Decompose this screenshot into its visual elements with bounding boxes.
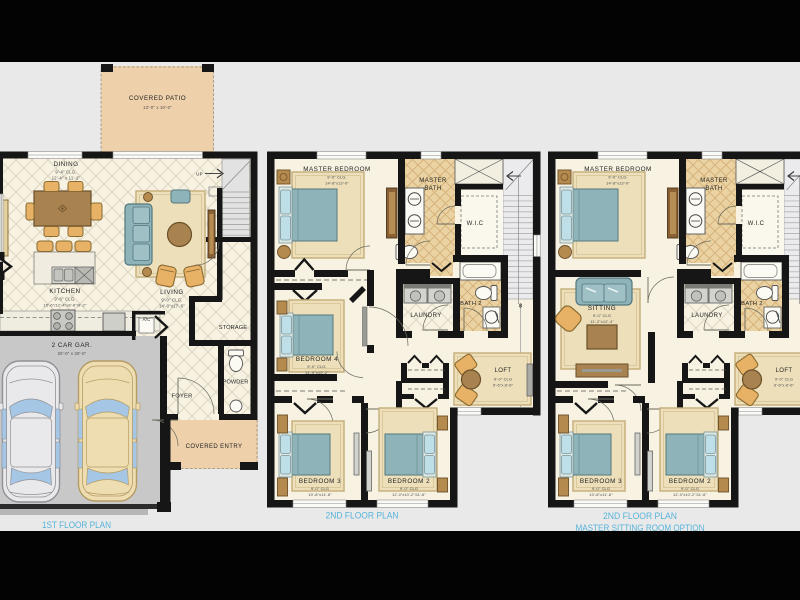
svg-text:W.I.C: W.I.C <box>748 221 765 227</box>
svg-text:15'-6"/12'-4"x8'-6"/9'-2": 15'-6"/12'-4"x8'-6"/9'-2" <box>43 303 87 308</box>
svg-text:9'-0" CLG: 9'-0" CLG <box>592 486 610 491</box>
svg-text:10'-8"x11'-6": 10'-8"x11'-6" <box>589 492 613 497</box>
svg-text:9'-0" CLG.: 9'-0" CLG. <box>608 175 627 180</box>
svg-text:9'-0" CLG: 9'-0" CLG <box>593 313 611 318</box>
svg-text:9'-0" CLG: 9'-0" CLG <box>681 486 699 491</box>
svg-text:COVERED PATIO: COVERED PATIO <box>129 95 186 102</box>
svg-text:9'-0" CLG: 9'-0" CLG <box>400 486 418 491</box>
svg-text:8: 8 <box>519 304 522 310</box>
svg-text:12'-0"x10'-2"/11'-6": 12'-0"x10'-2"/11'-6" <box>673 493 707 497</box>
svg-text:9'-0" CLG: 9'-0" CLG <box>311 486 329 491</box>
svg-text:14'-0"x17'-6": 14'-0"x17'-6" <box>159 304 185 309</box>
svg-text:FOYER: FOYER <box>172 394 193 400</box>
svg-text:BATH 2: BATH 2 <box>741 301 763 307</box>
svg-text:MASTER BEDROOM: MASTER BEDROOM <box>303 166 371 173</box>
svg-text:UP: UP <box>196 172 203 177</box>
svg-text:11'-2"x12'-4": 11'-2"x12'-4" <box>590 319 614 324</box>
svg-text:BEDROOM 2: BEDROOM 2 <box>669 478 711 485</box>
svg-text:1ST FLOOR PLAN: 1ST FLOOR PLAN <box>42 520 111 530</box>
svg-text:9'-6" CLG.: 9'-6" CLG. <box>54 297 75 302</box>
svg-text:LOFT: LOFT <box>776 368 793 374</box>
svg-text:9'-0" CLG.: 9'-0" CLG. <box>327 175 346 180</box>
svg-text:BEDROOM 2: BEDROOM 2 <box>388 478 430 485</box>
svg-text:A/C: A/C <box>143 317 151 322</box>
svg-text:13'-0" x 10'-0": 13'-0" x 10'-0" <box>143 105 172 110</box>
svg-text:MASTER: MASTER <box>419 178 447 184</box>
svg-text:LIVING: LIVING <box>160 289 184 296</box>
svg-text:BATH: BATH <box>705 186 722 192</box>
svg-text:12'-4" x 11'-2": 12'-4" x 11'-2" <box>52 176 81 181</box>
svg-text:W.I.C: W.I.C <box>467 221 484 227</box>
svg-text:9'-0" CLG.: 9'-0" CLG. <box>161 298 182 303</box>
svg-text:POWDER: POWDER <box>223 380 249 386</box>
svg-text:9'-6"x 8'-6": 9'-6"x 8'-6" <box>774 383 795 388</box>
svg-text:9'-0" CLG: 9'-0" CLG <box>775 377 793 382</box>
svg-text:BATH: BATH <box>424 186 441 192</box>
svg-text:9'-0" CLG.: 9'-0" CLG. <box>307 364 326 369</box>
svg-text:10'-8"x11'-6": 10'-8"x11'-6" <box>308 492 332 497</box>
svg-text:STORAGE: STORAGE <box>219 325 248 331</box>
svg-text:BEDROOM 4: BEDROOM 4 <box>296 356 338 363</box>
svg-text:BEDROOM 3: BEDROOM 3 <box>299 478 341 485</box>
svg-text:KITCHEN: KITCHEN <box>49 288 80 295</box>
svg-text:2ND FLOOR PLAN: 2ND FLOOR PLAN <box>603 511 677 521</box>
svg-text:SITTING: SITTING <box>588 305 616 312</box>
svg-text:2ND FLOOR PLAN: 2ND FLOOR PLAN <box>326 511 399 521</box>
svg-text:9'-4" CLG.: 9'-4" CLG. <box>55 170 76 175</box>
svg-text:14'-8"x13'-0": 14'-8"x13'-0" <box>325 181 349 186</box>
svg-text:DINING: DINING <box>53 161 78 168</box>
svg-text:MASTER: MASTER <box>700 178 728 184</box>
svg-text:14'-8"x13'-0": 14'-8"x13'-0" <box>606 181 630 186</box>
svg-text:MASTER SITTING ROOM OPTION: MASTER SITTING ROOM OPTION <box>576 523 705 533</box>
svg-text:9'-0" CLG: 9'-0" CLG <box>494 377 512 382</box>
svg-text:BEDROOM 3: BEDROOM 3 <box>580 478 622 485</box>
svg-text:2 CAR GAR.: 2 CAR GAR. <box>52 342 93 349</box>
svg-text:COVERED ENTRY: COVERED ENTRY <box>186 444 243 450</box>
svg-text:9'-6"x 8'-6": 9'-6"x 8'-6" <box>493 383 514 388</box>
svg-text:LOFT: LOFT <box>495 368 512 374</box>
svg-text:BATH 2: BATH 2 <box>460 301 482 307</box>
svg-text:20'-0" x 20'-0": 20'-0" x 20'-0" <box>58 351 87 356</box>
svg-text:12'-0"x10'-2"/11'-6": 12'-0"x10'-2"/11'-6" <box>392 493 426 497</box>
svg-text:MASTER BEDROOM: MASTER BEDROOM <box>584 166 652 173</box>
